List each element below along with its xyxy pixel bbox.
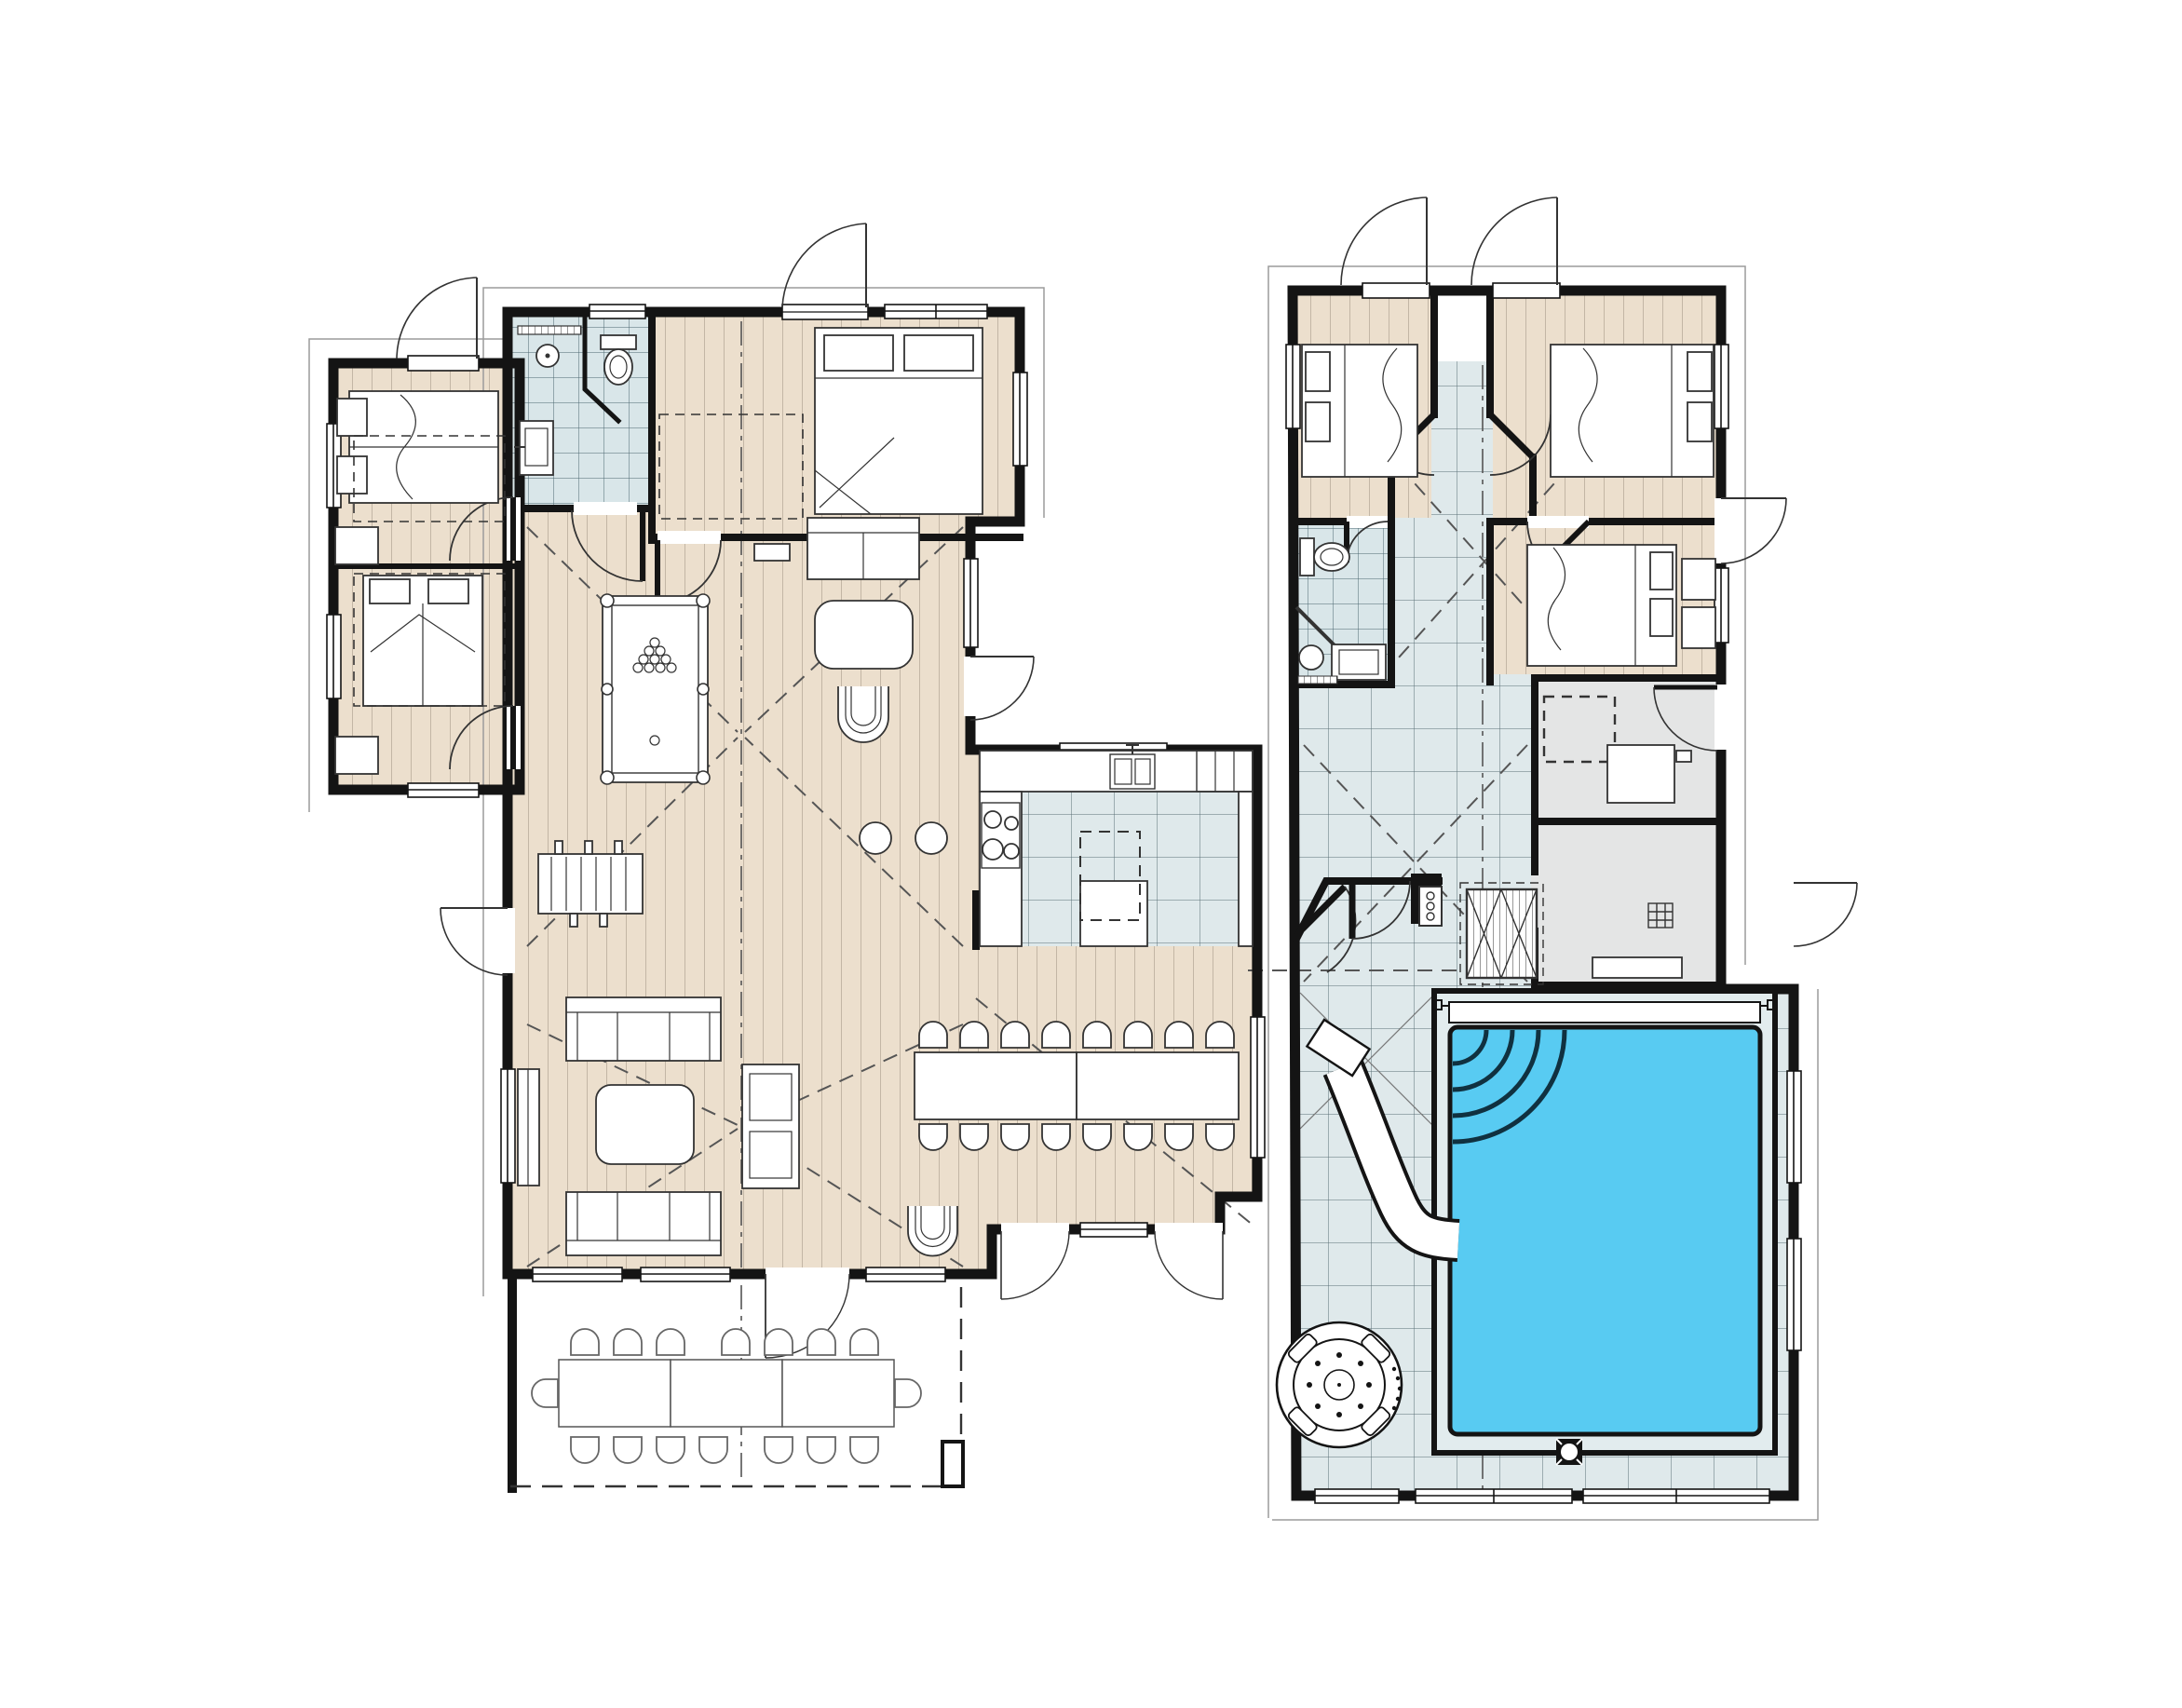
sofa-a: [566, 997, 721, 1061]
hot-tub: [1277, 1322, 1402, 1447]
vanity-r: [1332, 644, 1386, 680]
dining-table: [915, 1052, 1239, 1119]
floor-plan-drawing: [0, 0, 2182, 1708]
sink-left: [514, 421, 553, 475]
terrace: [510, 1287, 963, 1486]
bar-stool-1: [860, 822, 891, 854]
study-table: [815, 601, 913, 669]
pool-skimmer: [1556, 1439, 1582, 1465]
towel-rail-r: [1298, 676, 1337, 684]
terrace-table: [559, 1360, 894, 1427]
coffee-table: [596, 1085, 694, 1164]
drying-room-door: [1787, 883, 1857, 946]
round-basin-r: [1299, 645, 1323, 670]
study-u-chair: [838, 686, 888, 742]
entry-door-left-wing: [782, 224, 868, 319]
bed-r1: [1302, 345, 1417, 477]
drying-bench: [1592, 957, 1682, 978]
shelf-unit: [742, 1064, 799, 1188]
pool-water: [1450, 1027, 1760, 1434]
locker-bench: [1460, 883, 1543, 984]
closet-niche-floor: [1434, 294, 1490, 361]
bar-stool-2: [915, 822, 947, 854]
floor-plan-canvas: [0, 0, 2182, 1708]
side-door-east-bedrooms: [1714, 498, 1786, 563]
pool-shower-panel: [1419, 887, 1442, 926]
pool-beam: [1436, 1000, 1773, 1023]
billiard-table: [601, 594, 710, 784]
entry-door-annex: [397, 278, 479, 371]
sofa-b: [566, 1192, 721, 1255]
cue-rack: [538, 841, 643, 927]
entry-doors-right-wing: [1341, 197, 1560, 298]
master-bed: [815, 328, 983, 514]
side-door-east-kitchen: [964, 657, 1034, 720]
side-door-west: [440, 908, 515, 975]
study-sofa: [807, 518, 919, 579]
bed-r2: [1551, 345, 1714, 477]
dining-u-chair: [908, 1206, 957, 1256]
tv-sideboard: [518, 1069, 539, 1186]
hall-bench: [754, 544, 790, 561]
